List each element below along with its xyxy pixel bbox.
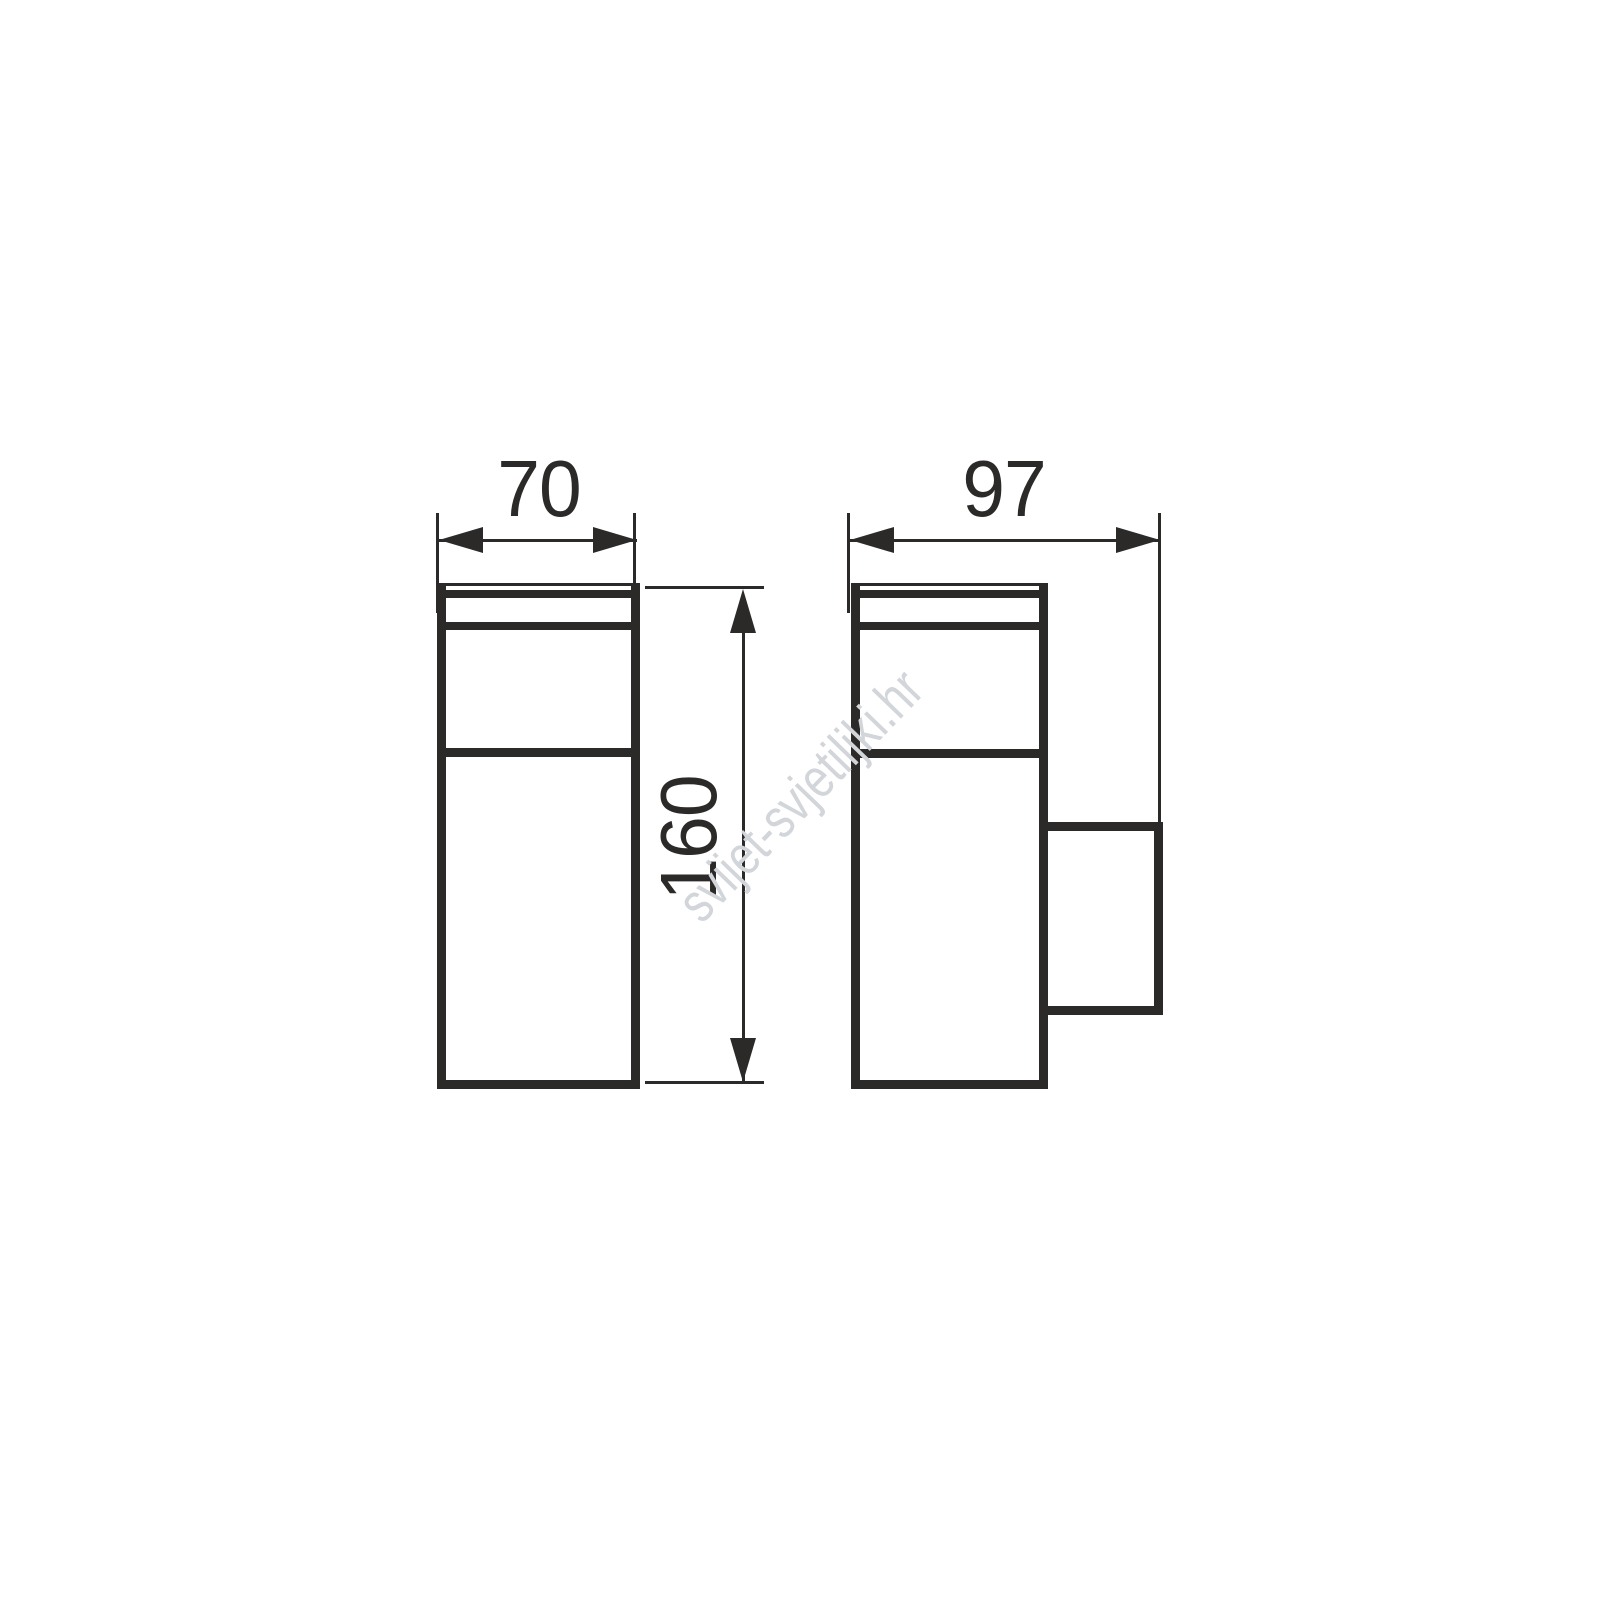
front-left-edge [437,583,446,1089]
side-cap-band-line [851,590,1048,598]
bracket-bottom-edge [1048,1006,1163,1015]
dim70-arrowhead-left-icon [439,527,483,553]
front-top-thin-line [437,583,640,586]
technical-drawing: 70 160 97 svijet-svjetiljki.hr [0,0,1599,1600]
side-bottom-edge [851,1080,1048,1089]
dim97-extension-right [1158,513,1161,825]
front-right-edge [631,583,640,1089]
front-bottom-edge [437,1080,640,1089]
dim70-label: 70 [443,449,635,529]
front-diffuser-top-line [437,622,640,630]
bracket-right-edge [1154,822,1163,1015]
side-diffuser-top-line [851,622,1048,630]
dim97-arrowhead-left-icon [850,527,894,553]
side-top-thin-line [851,583,1048,586]
side-right-edge [1039,583,1048,1089]
dim97-arrowhead-right-icon [1116,527,1160,553]
dim97-label: 97 [908,449,1100,529]
dim70-arrowhead-right-icon [593,527,637,553]
dim97-line [850,539,1160,542]
front-cap-band-line [437,590,640,598]
front-diffuser-bottom-line [437,748,640,757]
dim160-arrowhead-bottom-icon [730,1038,756,1082]
bracket-top-edge [1048,822,1163,831]
side-left-edge [851,583,860,1089]
dim160-arrowhead-top-icon [730,589,756,633]
